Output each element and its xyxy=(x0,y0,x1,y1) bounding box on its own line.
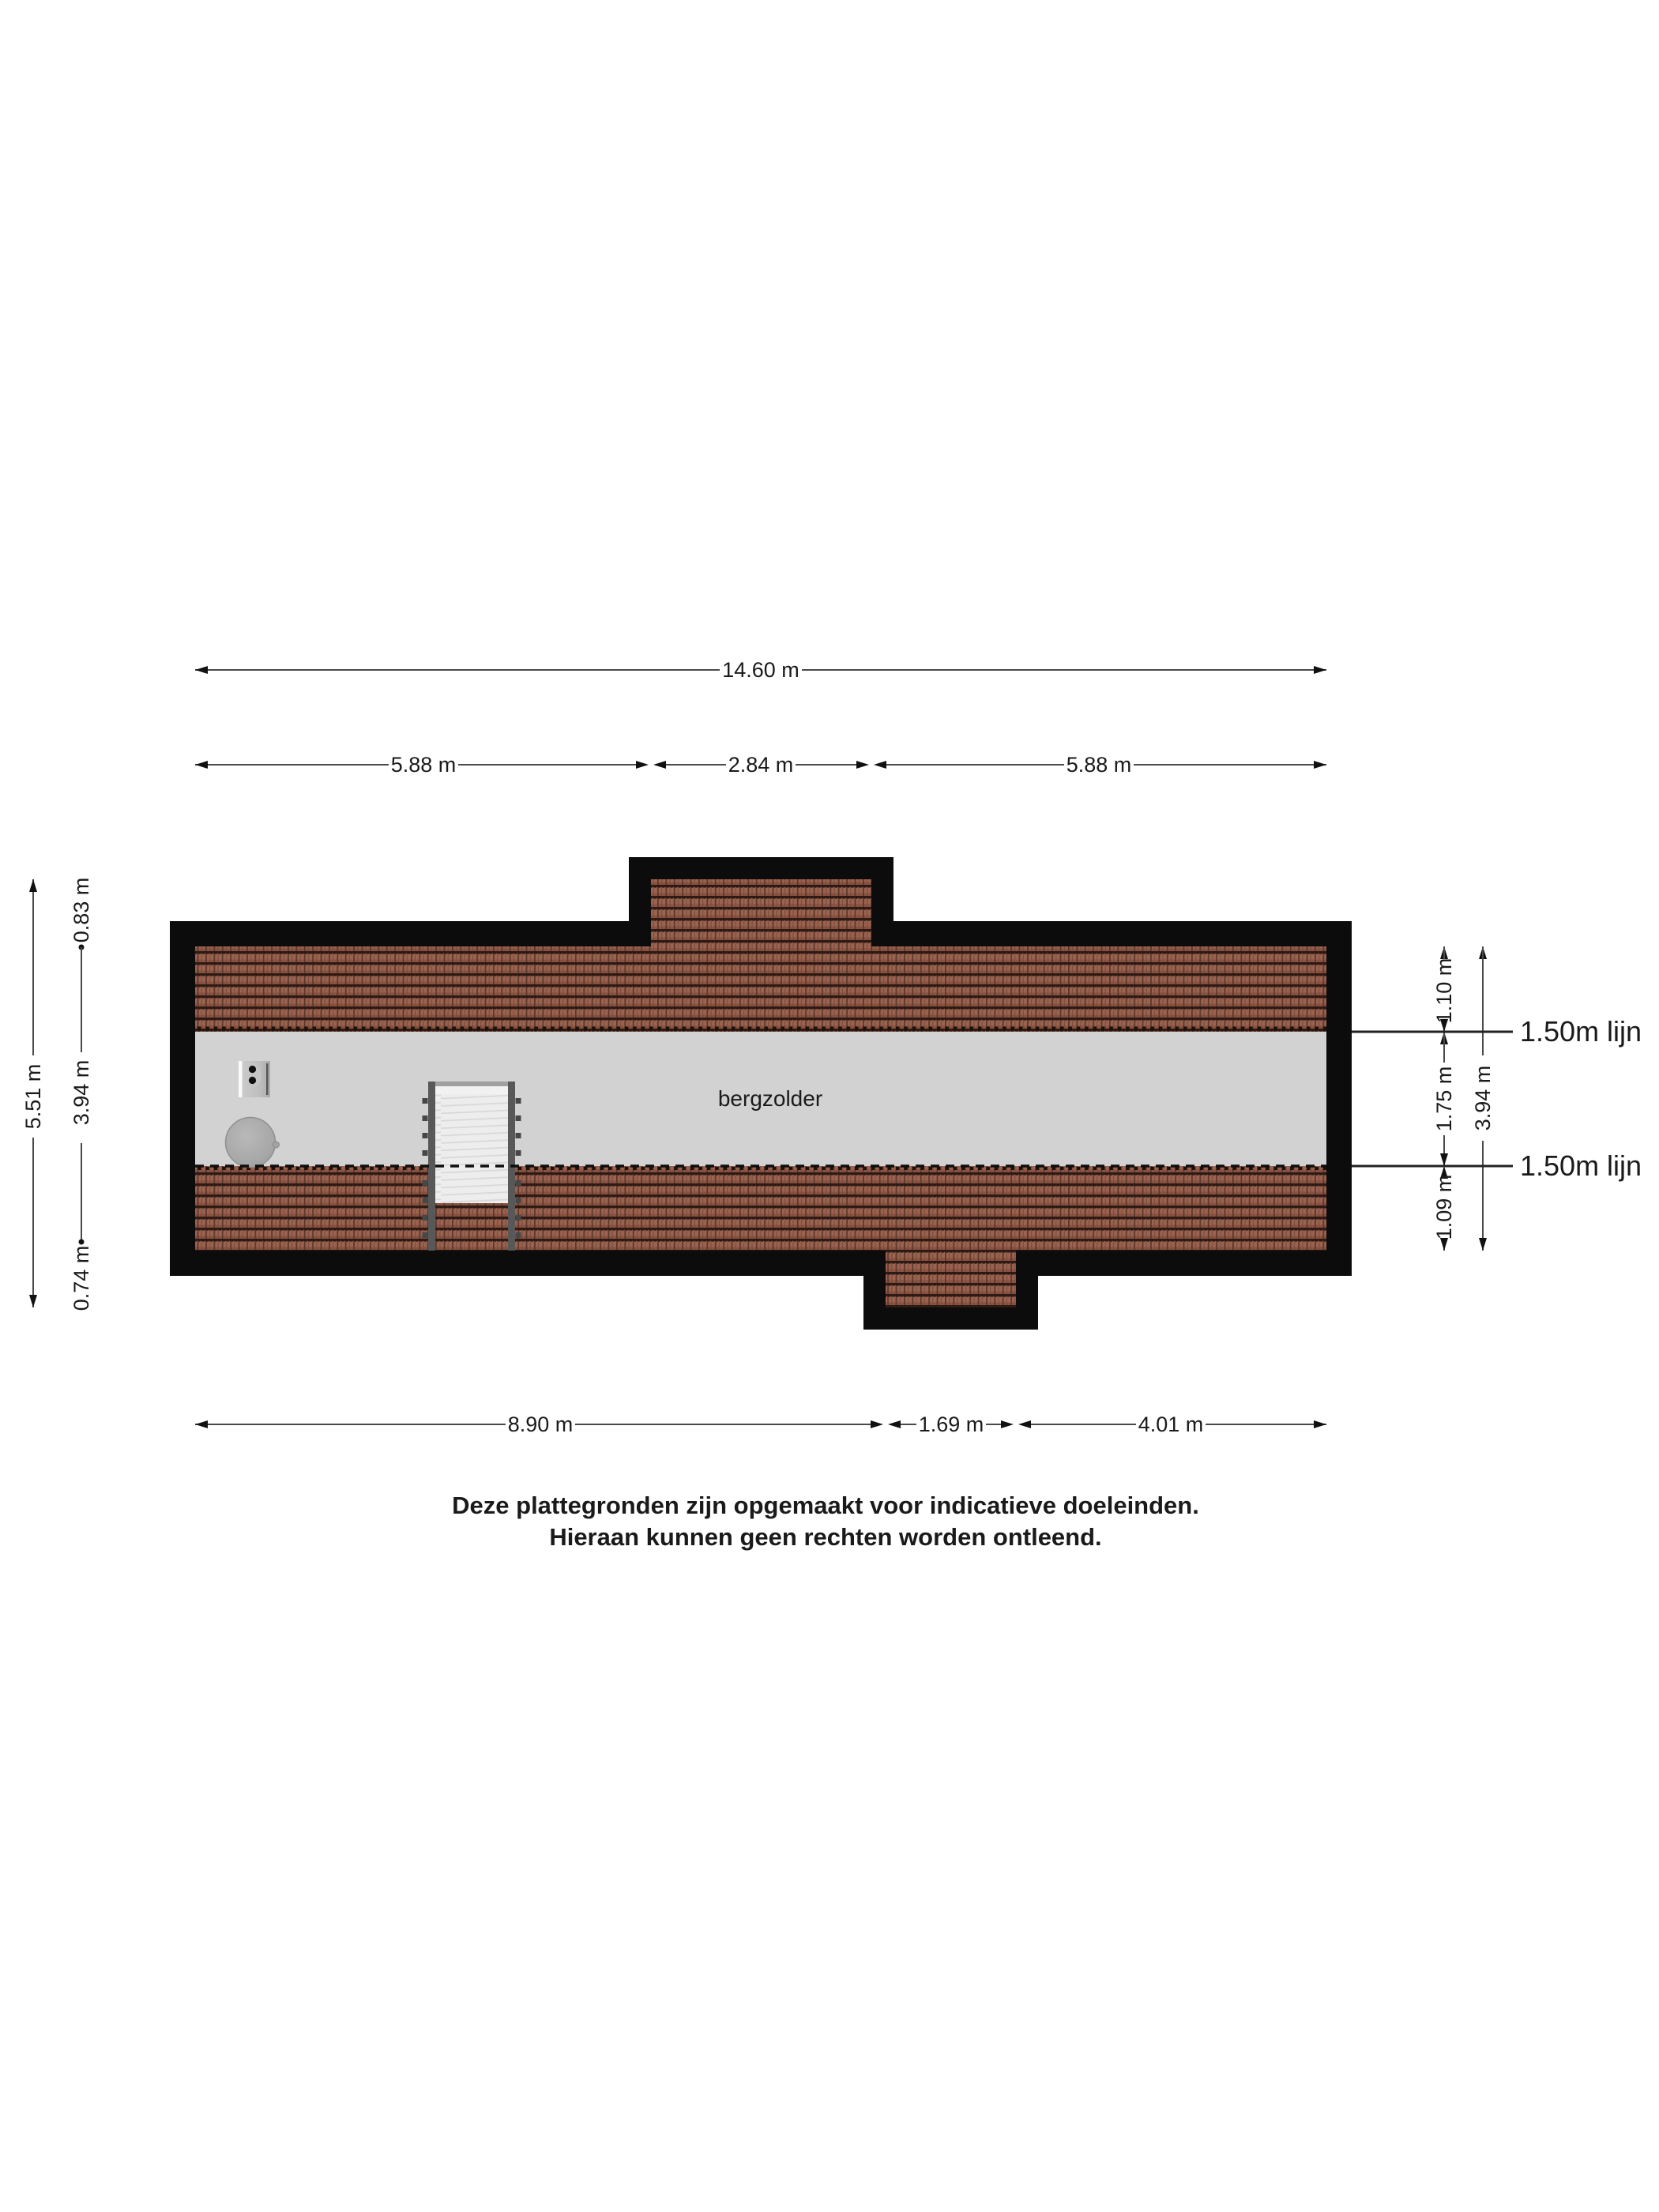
dim-top-seg-2: 2.84 m xyxy=(728,753,794,777)
dim-left-seg-2: 3.94 m xyxy=(70,1060,93,1126)
dim-top-seg-3: 5.88 m xyxy=(1066,753,1132,777)
floorplan-drawing: bergzolder xyxy=(170,857,1352,1330)
stair-rail-left xyxy=(428,1082,435,1251)
dim-left-total-label: 5.51 m xyxy=(21,1064,45,1130)
boiler-valve xyxy=(273,1142,280,1148)
dimension-top-total: 14.60 m xyxy=(195,658,1326,682)
dim-right-seg-1: 1.10 m xyxy=(1432,958,1456,1024)
dim-right-total-label: 3.94 m xyxy=(1471,1066,1495,1131)
dimension-top-segments: 5.88 m 2.84 m 5.88 m xyxy=(195,753,1326,777)
dim-left-seg-1: 0.83 m xyxy=(70,878,93,943)
roof-tiles-bottom xyxy=(195,1166,1326,1307)
height-line-bottom-label: 1.50m lijn xyxy=(1520,1149,1642,1182)
height-line-top: 1.50m lijn xyxy=(1352,1015,1642,1048)
stair-landing xyxy=(434,1086,508,1094)
dimension-bottom-segments: 8.90 m 1.69 m 4.01 m xyxy=(195,1413,1326,1436)
dimension-right-total: 3.94 m xyxy=(1471,946,1495,1251)
disclaimer-line-1: Deze plattegronden zijn opgemaakt voor i… xyxy=(452,1492,1199,1519)
room-label: bergzolder xyxy=(718,1086,822,1111)
box-dot-bottom xyxy=(249,1077,256,1084)
dim-bottom-seg-1: 8.90 m xyxy=(508,1413,574,1436)
dim-left-seg-3: 0.74 m xyxy=(70,1246,93,1311)
box-dot-top xyxy=(249,1066,256,1073)
dimension-left-total: 5.51 m xyxy=(21,879,45,1307)
floorplan-page: bergzolder 14.60 m 5.88 m 2.84 m 5.88 m xyxy=(0,0,1659,2212)
dim-top-total-label: 14.60 m xyxy=(722,658,799,682)
height-line-bottom: 1.50m lijn xyxy=(1352,1149,1642,1182)
dim-bottom-seg-3: 4.01 m xyxy=(1138,1413,1204,1436)
dimension-left-segments: 0.83 m 3.94 m 0.74 m xyxy=(70,878,93,1311)
dim-bottom-seg-2: 1.69 m xyxy=(919,1413,984,1436)
roof-tiles-top xyxy=(195,879,1326,1032)
dim-right-seg-3: 1.09 m xyxy=(1432,1175,1456,1240)
dimension-right-segments: 1.10 m 1.75 m 1.09 m xyxy=(1432,946,1456,1251)
electrical-box xyxy=(239,1061,270,1097)
disclaimer: Deze plattegronden zijn opgemaakt voor i… xyxy=(452,1492,1199,1551)
dim-top-seg-1: 5.88 m xyxy=(391,753,457,777)
disclaimer-line-2: Hieraan kunnen geen rechten worden ontle… xyxy=(549,1523,1101,1551)
dim-right-seg-2: 1.75 m xyxy=(1432,1066,1456,1132)
stair-top-edge xyxy=(434,1082,508,1086)
stair-treads xyxy=(434,1094,508,1203)
floorplan-svg: bergzolder 14.60 m 5.88 m 2.84 m 5.88 m xyxy=(0,0,1659,2212)
height-line-top-label: 1.50m lijn xyxy=(1520,1015,1642,1048)
